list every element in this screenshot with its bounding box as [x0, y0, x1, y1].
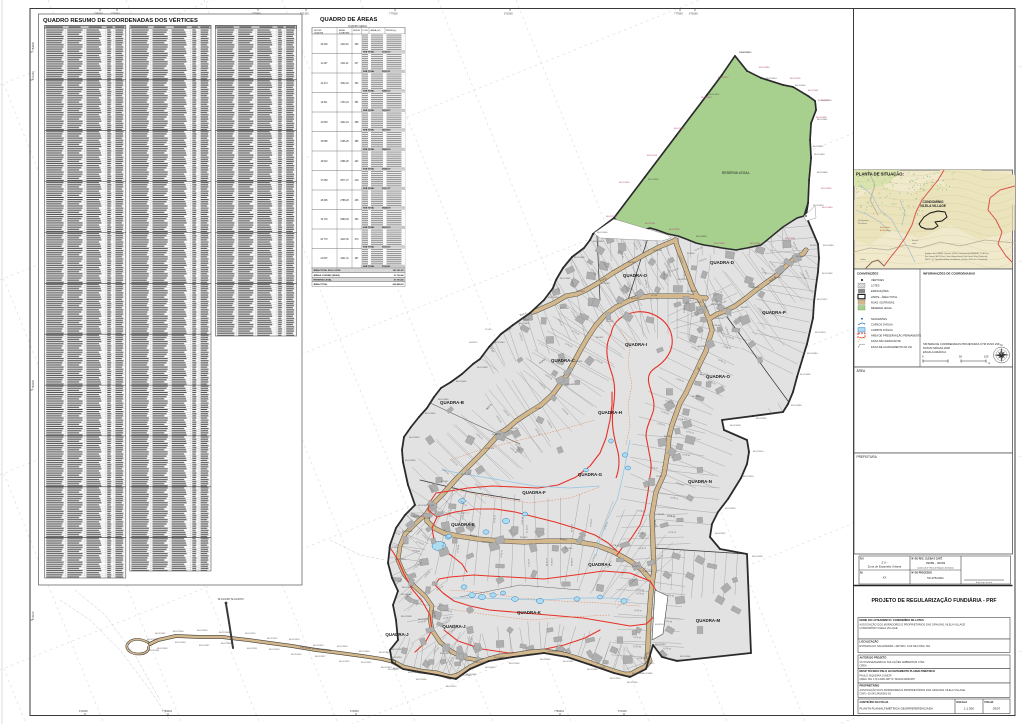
- svg-text:CREA: MG 170.140/D ART Nº MG: CREA: MG 170.140/D ART Nº MG20210052287: [860, 677, 916, 681]
- svg-text:M-01/1508: M-01/1508: [730, 425, 741, 427]
- svg-text:2577,27: 2577,27: [340, 180, 349, 182]
- svg-text:LOTE-70: LOTE-70: [525, 525, 527, 534]
- svg-text:12,583: 12,583: [535, 408, 542, 410]
- svg-text:M-01/1592: M-01/1592: [392, 649, 403, 651]
- svg-text:M-01/1836: M-01/1836: [750, 243, 761, 245]
- svg-text:ÁREA TOTAL: ÁREA TOTAL: [314, 283, 328, 286]
- svg-text:M-01/1554: M-01/1554: [610, 678, 621, 680]
- svg-text:LOTE-79: LOTE-79: [638, 548, 647, 550]
- svg-text:QUADRA: QUADRA: [314, 31, 324, 34]
- svg-text:SUB TOTAL: SUB TOTAL: [363, 265, 375, 268]
- svg-text:2999,29: 2999,29: [340, 219, 349, 221]
- svg-text:M-01/1406: M-01/1406: [648, 179, 659, 181]
- svg-text:M-01/1548: M-01/1548: [587, 669, 598, 671]
- svg-text:12,581: 12,581: [656, 476, 663, 478]
- svg-text:M-01/1305: M-01/1305: [175, 642, 186, 644]
- svg-text:M-01/1318: M-01/1318: [337, 646, 348, 648]
- svg-text:M-02/118: M-02/118: [692, 396, 701, 398]
- svg-text:7784400: 7784400: [31, 41, 35, 52]
- svg-text:LOTE-98: LOTE-98: [664, 621, 673, 623]
- svg-text:M-01/1460: M-01/1460: [823, 245, 834, 247]
- svg-text:SUB TOTAL: SUB TOTAL: [363, 70, 375, 73]
- svg-text:671100: 671100: [31, 611, 35, 620]
- svg-text:PREFEITURA: PREFEITURA: [857, 455, 878, 459]
- svg-text:M-01/1688: M-01/1688: [574, 257, 585, 259]
- svg-text:M-01/1310: M-01/1310: [245, 633, 256, 635]
- svg-text:LOTE-068: LOTE-068: [687, 291, 697, 293]
- svg-text:25655,35: 25655,35: [382, 149, 391, 151]
- svg-text:M-01/1320: M-01/1320: [359, 651, 370, 653]
- svg-text:M-01/1412: M-01/1412: [709, 94, 720, 96]
- svg-text:QUADRA-D: QUADRA-D: [710, 260, 734, 265]
- svg-text:LOTE-093: LOTE-093: [653, 250, 663, 252]
- svg-text:CONVENÇÕES: CONVENÇÕES: [857, 271, 878, 276]
- svg-text:M-01/1314: M-01/1314: [289, 639, 300, 641]
- svg-text:M-01/1670: M-01/1670: [519, 323, 530, 325]
- svg-text:M-01/1303: M-01/1303: [157, 648, 168, 650]
- svg-text:SUB TOTAL: SUB TOTAL: [363, 50, 375, 53]
- svg-text:M-01/54: M-01/54: [687, 253, 695, 255]
- svg-text:M-01/1301: M-01/1301: [149, 650, 160, 652]
- svg-text:M-01/1321: M-01/1321: [361, 662, 372, 664]
- svg-text:M-01/1302: M-01/1302: [155, 633, 166, 635]
- svg-text:50.475/2021: 50.475/2021: [927, 576, 944, 580]
- svg-text:M-01/1472: M-01/1472: [817, 299, 828, 301]
- svg-text:M-01/1518: M-01/1518: [466, 674, 477, 676]
- svg-text:ÁREA TOTAL DOS LOTES: ÁREA TOTAL DOS LOTES: [314, 269, 342, 272]
- svg-text:M-02/115: M-02/115: [810, 245, 819, 247]
- svg-text:LOTES: LOTES: [871, 284, 880, 288]
- svg-text:31241,41: 31241,41: [382, 265, 391, 268]
- svg-text:M-01/12: M-01/12: [695, 302, 703, 304]
- svg-text:ESCALA GRÁFICA: ESCALA GRÁFICA: [923, 350, 946, 354]
- svg-text:LOTE-24: LOTE-24: [684, 270, 686, 279]
- svg-text:03/07: 03/07: [993, 707, 1001, 711]
- svg-text:777600: 777600: [389, 12, 398, 16]
- svg-text:2155,25: 2155,25: [340, 141, 349, 143]
- svg-text:SUB TOTAL: SUB TOTAL: [363, 89, 375, 92]
- svg-text:QUADRA-M: QUADRA-M: [696, 618, 721, 623]
- svg-text:CNPJ: 00.043.245/0001-63: CNPJ: 00.043.245/0001-63: [860, 692, 892, 696]
- svg-text:M-01/1324: M-01/1324: [391, 657, 402, 659]
- svg-text:M-01/1484: M-01/1484: [807, 353, 818, 355]
- svg-text:QUADRA-L: QUADRA-L: [588, 562, 612, 567]
- svg-text:M-01/1728: M-01/1728: [606, 216, 617, 218]
- svg-text:M-01/82: M-01/82: [441, 481, 449, 483]
- svg-text:LOTE-96: LOTE-96: [545, 558, 547, 567]
- svg-text:M-01/1574: M-01/1574: [440, 653, 451, 655]
- svg-text:ESCALA: ESCALA: [957, 700, 968, 704]
- svg-text:M-01/1300: M-01/1300: [147, 639, 158, 641]
- svg-text:QUADRA-O: QUADRA-O: [623, 273, 648, 278]
- svg-text:VILELA VILLAGE: VILELA VILLAGE: [920, 204, 946, 208]
- svg-text:M-01/1304: M-01/1304: [674, 128, 685, 130]
- svg-text:LOTE-16: LOTE-16: [667, 516, 676, 518]
- svg-text:M-01/1448: M-01/1448: [814, 154, 825, 156]
- svg-text:PAULO SIQUEIRA JUNIOR: PAULO SIQUEIRA JUNIOR: [860, 674, 892, 678]
- svg-text:LOTE-71: LOTE-71: [527, 559, 529, 568]
- svg-text:M-01/1317: M-01/1317: [315, 656, 326, 658]
- svg-text:M-01/1652: M-01/1652: [456, 381, 467, 383]
- svg-text:M-01/1520: M-01/1520: [743, 476, 754, 478]
- svg-text:M-01/59: M-01/59: [741, 307, 749, 309]
- svg-text:LOTE-074: LOTE-074: [750, 287, 760, 289]
- svg-text:29089 - 30003: 29089 - 30003: [926, 561, 946, 565]
- svg-text:7784001: 7784001: [162, 709, 173, 713]
- svg-text:M-01/1466: M-01/1466: [822, 273, 833, 275]
- svg-text:11.437: 11.437: [321, 63, 329, 65]
- svg-text:QUADRO RESUMO DE COORDENADAS: QUADRO RESUMO DE COORDENADAS DOS VÉRTICE…: [43, 16, 198, 24]
- svg-text:SUB TOTAL: SUB TOTAL: [363, 167, 375, 170]
- svg-text:M-01/1430: M-01/1430: [795, 85, 806, 87]
- svg-text:ÁREAS COMUNS (RUAS): ÁREAS COMUNS (RUAS): [314, 274, 341, 277]
- svg-text:M-01/1562: M-01/1562: [402, 587, 413, 589]
- svg-text:SUB TOTAL: SUB TOTAL: [363, 226, 375, 229]
- svg-text:M-01/1664: M-01/1664: [494, 342, 505, 344]
- svg-text:12.474: 12.474: [320, 83, 328, 85]
- svg-text:M-01/1544: M-01/1544: [680, 656, 691, 658]
- svg-text:12,545: 12,545: [485, 329, 492, 331]
- svg-text:2366,26: 2366,26: [340, 161, 349, 163]
- svg-text:M-01/1568: M-01/1568: [548, 651, 559, 653]
- svg-text:M-01/81: M-01/81: [711, 304, 719, 306]
- svg-text:CREA: CREA: [860, 664, 867, 668]
- svg-text:LOTE-042: LOTE-042: [712, 325, 722, 327]
- svg-text:M-01/1566: M-01/1566: [642, 673, 653, 675]
- svg-text:M-01/1405: M-01/1405: [817, 172, 828, 174]
- svg-text:LOTE-079: LOTE-079: [678, 419, 688, 421]
- svg-text:M-01/90: M-01/90: [565, 548, 573, 550]
- svg-text:DATUM SIRGAS 2000: DATUM SIRGAS 2000: [923, 346, 950, 350]
- svg-text:M-01/1497 M-01/1970: M-01/1497 M-01/1970: [218, 597, 244, 601]
- svg-text:28448,38: 28448,38: [382, 206, 391, 209]
- svg-text:30310,40: 30310,40: [382, 245, 391, 248]
- svg-text:M-01/89: M-01/89: [444, 530, 452, 532]
- svg-text:24724,34: 24724,34: [382, 128, 391, 131]
- svg-text:12,568: 12,568: [424, 518, 431, 520]
- svg-text:LOTE-077: LOTE-077: [601, 283, 611, 285]
- svg-text:M-01/1550: M-01/1550: [413, 516, 424, 518]
- svg-text:LOTE-094: LOTE-094: [655, 514, 665, 516]
- svg-text:M-01/1536: M-01/1536: [540, 659, 551, 661]
- svg-text:M-01/1560: M-01/1560: [627, 682, 638, 684]
- svg-text:Explore: Esri, HERE, Garmin, U: Explore: Esri, HERE, Garmin, USGS, Inter…: [925, 252, 990, 255]
- svg-text:INFORMAÇÕES DE COORDENADAS: INFORMAÇÕES DE COORDENADAS: [923, 271, 975, 276]
- svg-text:QUADRA-I: QUADRA-I: [625, 342, 647, 347]
- svg-text:671800: 671800: [350, 709, 359, 713]
- svg-text:12,523: 12,523: [428, 505, 435, 507]
- svg-text:M-01/75: M-01/75: [596, 337, 604, 339]
- svg-text:Zona de Expansão Urbana: Zona de Expansão Urbana: [868, 564, 902, 568]
- svg-text:XX: XX: [883, 576, 887, 580]
- svg-text:FAIXA DE ALARGAMENTO DA VIA: FAIXA DE ALARGAMENTO DA VIA: [871, 345, 912, 349]
- svg-text:19.733: 19.733: [320, 219, 328, 221]
- svg-text:SUB TOTAL: SUB TOTAL: [363, 148, 375, 151]
- svg-text:LOTE-097: LOTE-097: [611, 545, 621, 547]
- svg-text:21000,30: 21000,30: [382, 51, 391, 53]
- svg-text:QUADRA-C: QUADRA-C: [551, 358, 576, 363]
- svg-text:SISTEMA DE COORDENADAS PROJETA: SISTEMA DE COORDENADAS PROJETADAS UTM FU…: [923, 342, 1000, 346]
- svg-text:13.511: 13.511: [321, 102, 329, 104]
- svg-text:26586,36: 26586,36: [382, 168, 391, 170]
- svg-text:1311,21: 1311,21: [340, 63, 349, 65]
- svg-text:QUADRA-F: QUADRA-F: [522, 490, 546, 495]
- svg-text:LOTE-089: LOTE-089: [565, 384, 575, 386]
- svg-text:QUADRA-P: QUADRA-P: [762, 310, 786, 315]
- svg-text:15.585: 15.585: [320, 141, 328, 143]
- svg-text:1733,23: 1733,23: [340, 102, 349, 104]
- svg-text:100: 100: [984, 355, 989, 359]
- svg-text:LOTE-75: LOTE-75: [638, 533, 647, 535]
- svg-text:M-01/1101: M-01/1101: [645, 223, 656, 225]
- svg-text:M-01/1586: M-01/1586: [408, 672, 419, 674]
- svg-text:3421,31: 3421,31: [340, 258, 349, 260]
- svg-text:PLANTA DE SITUAÇÃO:: PLANTA DE SITUAÇÃO:: [856, 172, 904, 177]
- svg-text:M-01/1500: M-01/1500: [388, 669, 399, 671]
- svg-text:M-01/1550: M-01/1550: [655, 644, 666, 646]
- svg-text:QUADRA-J: QUADRA-J: [442, 624, 466, 629]
- svg-text:M-01/1315: M-01/1315: [291, 654, 302, 656]
- svg-text:M-01/1584: M-01/1584: [714, 243, 725, 245]
- svg-text:velha: velha: [912, 243, 916, 245]
- svg-text:M-01/1311: M-01/1311: [247, 648, 258, 650]
- svg-text:LOTE-078: LOTE-078: [485, 448, 495, 450]
- svg-text:AUTOR DO PROJETO: AUTOR DO PROJETO: [860, 656, 887, 660]
- svg-text:M-01/1400: M-01/1400: [597, 232, 608, 234]
- svg-text:ESTRADA DO SALVATERRA - RETIRO: ESTRADA DO SALVATERRA - RETIRO, JUIZ DE …: [860, 644, 931, 648]
- svg-text:M-01/1574: M-01/1574: [494, 657, 505, 659]
- svg-text:181.391,05: 181.391,05: [393, 270, 405, 272]
- svg-text:do Salvaterra: do Salvaterra: [880, 229, 891, 232]
- svg-text:M-02/196: M-02/196: [492, 434, 501, 436]
- svg-text:SUB TOTAL: SUB TOTAL: [363, 109, 375, 112]
- svg-text:M-01/1313: M-01/1313: [269, 649, 280, 651]
- svg-text:7784100: 7784100: [31, 379, 35, 390]
- svg-text:21931,31: 21931,31: [382, 71, 391, 73]
- svg-text:RUAS / ESTRADAS: RUAS / ESTRADAS: [871, 300, 895, 304]
- svg-text:QUADRA-E: QUADRA-E: [451, 522, 475, 527]
- svg-text:QUADRA-O: QUADRA-O: [706, 374, 731, 379]
- svg-text:SUB TOTAL: SUB TOTAL: [363, 245, 375, 248]
- svg-text:M-01/1819: M-01/1819: [619, 182, 630, 184]
- svg-text:2788,28: 2788,28: [340, 200, 349, 202]
- svg-text:M-01/1572: M-01/1572: [644, 663, 655, 665]
- svg-text:N: N: [1000, 343, 1002, 347]
- svg-text:M-01/36: M-01/36: [575, 361, 583, 363]
- svg-text:14.548: 14.548: [320, 122, 328, 124]
- svg-text:27517,37: 27517,37: [382, 188, 391, 190]
- svg-text:57.793,66: 57.793,66: [394, 279, 405, 281]
- svg-text:PERÍM.(m): PERÍM.(m): [386, 29, 397, 32]
- svg-text:LOTE-72: LOTE-72: [664, 270, 666, 279]
- svg-text:PLANTA PLANIALTIMÉTRICA GEORRE: PLANTA PLANIALTIMÉTRICA GEORREFERENCIADA: [860, 706, 933, 711]
- svg-text:M-01/1490: M-01/1490: [800, 374, 811, 376]
- svg-text:23793,33: 23793,33: [382, 110, 391, 112]
- svg-text:Jardins: Jardins: [860, 259, 866, 261]
- svg-text:1100,20: 1100,20: [340, 44, 349, 46]
- svg-text:M-01/1440: M-01/1440: [822, 207, 833, 209]
- svg-text:M-02/147: M-02/147: [521, 319, 530, 321]
- svg-text:Engº resp. técnico: Engº resp. técnico: [976, 581, 993, 584]
- svg-text:QUADRA-K: QUADRA-K: [517, 610, 542, 615]
- svg-text:ÁREA (m²): ÁREA (m²): [371, 29, 381, 32]
- svg-text:M-01/1454: M-01/1454: [813, 205, 824, 207]
- svg-text:Bairro Retiro: Bairro Retiro: [880, 226, 890, 229]
- svg-text:M-01/1694: M-01/1694: [593, 241, 604, 243]
- svg-text:CORPOS D’ÁGUA: CORPOS D’ÁGUA: [871, 328, 893, 332]
- svg-text:M-01/46: M-01/46: [664, 436, 672, 438]
- svg-text:PERÍM.: PERÍM.: [353, 29, 361, 32]
- svg-text:22862,32: 22862,32: [382, 90, 391, 92]
- svg-text:1:1.500: 1:1.500: [964, 707, 974, 711]
- svg-text:M-01/1304: M-01/1304: [173, 631, 184, 633]
- svg-text:M-01/78: M-01/78: [632, 566, 640, 568]
- svg-text:17.659: 17.659: [320, 180, 328, 182]
- svg-text:SUB TOTAL: SUB TOTAL: [363, 128, 375, 131]
- svg-text:M-01/1568: M-01/1568: [418, 619, 429, 621]
- svg-text:M-01/1532: M-01/1532: [715, 533, 726, 535]
- svg-text:M-02/134: M-02/134: [678, 279, 687, 281]
- svg-text:M-02/144: M-02/144: [655, 624, 664, 626]
- svg-text:LOTE-66: LOTE-66: [522, 516, 524, 525]
- svg-text:LIMITE - ÁREA TOTAL: LIMITE - ÁREA TOTAL: [871, 295, 898, 299]
- svg-text:M-01/1612: M-01/1612: [718, 77, 729, 79]
- svg-text:16.622: 16.622: [320, 161, 328, 163]
- svg-text:QUADRA-H: QUADRA-H: [598, 410, 622, 415]
- svg-text:LOTE: LOTE: [363, 30, 369, 32]
- svg-text:M-01/1530: M-01/1530: [509, 663, 520, 665]
- svg-text:QUADRA-G: QUADRA-G: [578, 472, 603, 477]
- svg-text:18.696: 18.696: [320, 200, 328, 202]
- svg-text:M-01/1676: M-01/1676: [548, 297, 559, 299]
- svg-text:M-01/1458: M-01/1458: [696, 236, 707, 238]
- svg-text:M-01/1658: M-01/1658: [477, 367, 488, 369]
- svg-text:M-01/1580: M-01/1580: [476, 662, 487, 664]
- svg-text:M-01/1526: M-01/1526: [725, 508, 736, 510]
- svg-text:671900: 671900: [618, 709, 627, 713]
- svg-text:M-02/115: M-02/115: [469, 342, 478, 344]
- svg-text:M-01/1616: M-01/1616: [402, 531, 413, 533]
- svg-text:21.807: 21.807: [320, 258, 328, 260]
- svg-text:M-01/1308: M-01/1308: [219, 632, 230, 634]
- svg-text:M-01/1309: M-01/1309: [221, 643, 232, 645]
- svg-text:ÁREA: ÁREA: [857, 369, 867, 373]
- svg-text:671600: 671600: [689, 12, 698, 16]
- svg-text:M-01/59: M-01/59: [520, 537, 528, 539]
- svg-text:M-01/20: M-01/20: [606, 321, 614, 323]
- svg-text:M-01/1436: M-01/1436: [821, 100, 832, 102]
- svg-text:M-01/1598: M-01/1598: [401, 616, 412, 618]
- svg-text:M-01/1424: M-01/1424: [766, 78, 777, 80]
- svg-text:LOTE-15: LOTE-15: [501, 549, 503, 558]
- svg-text:Sta Helena: Sta Helena: [858, 222, 867, 225]
- svg-text:M-01/1115: M-01/1115: [647, 155, 658, 157]
- svg-text:M-01/1433: M-01/1433: [821, 188, 832, 190]
- svg-text:CONDOMÍNIO VILELA VILLAGE: CONDOMÍNIO VILELA VILLAGE: [860, 626, 898, 630]
- svg-text:M-01/38: M-01/38: [577, 291, 585, 293]
- svg-text:SUB TOTAL: SUB TOTAL: [363, 187, 375, 190]
- svg-text:M-01/1899: M-01/1899: [759, 67, 770, 69]
- svg-text:M-01/1634: M-01/1634: [409, 437, 420, 439]
- svg-text:LOTE-22: LOTE-22: [668, 532, 677, 534]
- svg-text:M-01/1319: M-01/1319: [339, 661, 350, 663]
- svg-text:RESERVA LEGAL: RESERVA LEGAL: [871, 306, 893, 310]
- svg-text:M-01/1478: M-01/1478: [815, 332, 826, 334]
- svg-text:M-01/1628: M-01/1628: [405, 460, 416, 462]
- svg-text:M-01/1306: M-01/1306: [197, 630, 208, 632]
- svg-text:260.888,39: 260.888,39: [393, 284, 405, 286]
- svg-text:M-01/1312: M-01/1312: [267, 638, 278, 640]
- svg-text:RESERVA LEGAL: RESERVA LEGAL: [314, 278, 333, 281]
- svg-text:CURSOS D’ÁGUA: CURSOS D’ÁGUA: [871, 322, 893, 326]
- svg-text:M-01/1640: M-01/1640: [425, 413, 436, 415]
- svg-text:M-01/1502: M-01/1502: [756, 418, 767, 420]
- svg-text:RESERVA LEGAL: RESERVA LEGAL: [722, 171, 750, 175]
- svg-text:777500: 777500: [674, 12, 683, 16]
- svg-text:(QUADRA): (QUADRA): [339, 31, 350, 34]
- svg-text:M-01/1181: M-01/1181: [785, 238, 796, 240]
- svg-text:M-01/1506: M-01/1506: [416, 679, 427, 681]
- svg-text:M-01/1610: M-01/1610: [395, 559, 406, 561]
- svg-text:M-01/1538: M-01/1538: [752, 556, 763, 558]
- svg-text:QUADRO DE ÁREAS: QUADRO DE ÁREAS: [320, 16, 377, 23]
- svg-text:M-01/1604: M-01/1604: [401, 594, 412, 596]
- svg-text:LOTE-31: LOTE-31: [550, 558, 552, 567]
- svg-text:1522,22: 1522,22: [340, 83, 349, 85]
- svg-text:N.I: N.I: [860, 573, 863, 575]
- svg-text:M-01/1216: M-01/1216: [790, 78, 801, 80]
- svg-text:M-01/1542: M-01/1542: [563, 661, 574, 663]
- svg-text:FOLHA: FOLHA: [985, 700, 994, 704]
- svg-text:M-01/1682: M-01/1682: [560, 278, 571, 280]
- svg-text:LOTE-061: LOTE-061: [637, 658, 647, 660]
- svg-text:NGCC, (c) OpenStreetMap contri: NGCC, (c) OpenStreetMap contributors, an…: [925, 258, 987, 261]
- svg-text:M-01/40: M-01/40: [645, 571, 653, 573]
- svg-text:M-01/1556: M-01/1556: [388, 547, 399, 549]
- svg-text:M-01/1418: M-01/1418: [741, 52, 752, 54]
- svg-text:QUADRA-B: QUADRA-B: [440, 400, 464, 405]
- svg-text:20.770: 20.770: [320, 239, 328, 241]
- svg-text:M-01/1269: M-01/1269: [669, 229, 680, 231]
- svg-text:Cartório do 2º Ofício de Regis: Cartório do 2º Ofício de Registro de Imó…: [917, 567, 954, 570]
- svg-text:M-02/180: M-02/180: [715, 318, 724, 320]
- svg-text:PROJETO DE REGULARIZAÇÃO FUNDI: PROJETO DE REGULARIZAÇÃO FUNDIÁRIA - PRF: [871, 597, 996, 604]
- svg-text:3210,30: 3210,30: [340, 239, 349, 241]
- svg-text:Estrada: Estrada: [912, 239, 918, 242]
- svg-text:M-01/1514: M-01/1514: [753, 451, 764, 453]
- svg-text:M-01/1442: M-01/1442: [817, 119, 828, 121]
- svg-text:M-01/1342: M-01/1342: [808, 90, 819, 92]
- svg-text:7784301: 7784301: [554, 709, 565, 713]
- svg-text:LOTE-82: LOTE-82: [570, 558, 572, 567]
- svg-text:M-01/63: M-01/63: [628, 262, 636, 264]
- svg-text:29379,39: 29379,39: [382, 227, 391, 229]
- svg-text:LOTE-084: LOTE-084: [461, 474, 471, 476]
- svg-text:NASCENTES: NASCENTES: [871, 317, 887, 321]
- svg-text:M-01/38: M-01/38: [631, 298, 639, 300]
- svg-text:M-02/140: M-02/140: [482, 542, 491, 544]
- svg-text:671500: 671500: [504, 12, 513, 16]
- svg-text:671200: 671200: [31, 71, 35, 80]
- svg-text:M-01/1524: M-01/1524: [485, 667, 496, 669]
- svg-text:LOTE-55: LOTE-55: [570, 524, 572, 533]
- svg-text:672000: 672000: [79, 709, 88, 713]
- svg-text:Vila Bandeira: Vila Bandeira: [858, 220, 869, 222]
- svg-text:M-01/1496: M-01/1496: [791, 405, 802, 407]
- svg-text:M-01/70: M-01/70: [511, 428, 519, 430]
- svg-text:M-02/158: M-02/158: [560, 308, 569, 310]
- svg-text:m: m: [988, 362, 990, 365]
